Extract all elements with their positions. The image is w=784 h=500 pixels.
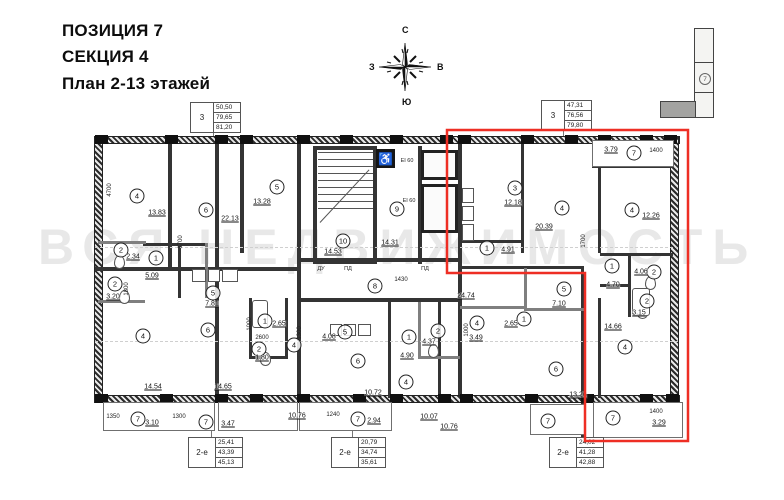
room-number-badge: 4 [470,316,485,331]
wall-segment [168,143,172,270]
kitchen-fixture [192,269,206,282]
room-number-badge: 1 [402,330,417,345]
room-number-badge: 6 [549,362,564,377]
room-area-label: 3.49 [469,335,483,342]
area-value: 20,79 [359,438,385,448]
wall-pier [165,135,178,144]
area-value: 76,56 [565,111,591,121]
room-number-badge: 4 [555,201,570,216]
room-number-badge: 1 [480,241,495,256]
wall-pier [297,135,310,144]
wall-pier [525,394,538,403]
dimension-label: 1430 [394,277,407,283]
apartment-type-label: 2-е [332,438,359,467]
stair-tread [318,187,373,188]
room-number-badge: 7 [199,415,214,430]
dimension-label: 1240 [326,412,339,418]
area-value: 79,80 [565,121,591,130]
wall-segment [524,308,584,311]
room-area-label: 20.39 [535,224,553,231]
room-area-label: 14.54 [144,384,162,391]
room-area-label: 22.13 [221,216,239,223]
wall-segment [313,146,377,150]
room-number-badge: 2 [647,265,662,280]
technical-note-label: ПД [421,266,429,272]
room-number-badge: 6 [199,203,214,218]
wall-segment [418,302,421,358]
room-number-badge: 7 [541,414,556,429]
dimension-label: 1300 [297,326,303,339]
room-area-label: 4.37 [422,339,436,346]
dimension-label: 1000 [464,323,470,336]
room-area-label: 7.81 [205,301,219,308]
wall-segment [313,260,377,264]
area-value: 42,88 [577,458,603,467]
area-value: 50,50 [214,103,240,113]
wall-segment [297,298,461,302]
room-area-label: 13.26 [569,392,587,399]
room-number-badge: 4 [136,329,151,344]
room-number-badge: 7 [627,146,642,161]
dimension-label: 1700 [178,235,184,248]
room-area-label: 12.18 [504,200,522,207]
area-value: 41,28 [577,448,603,458]
apartment-table-top-right: 3 47,31 76,56 79,80 [541,100,592,131]
area-value: 45,13 [216,458,242,467]
wall-pier [390,135,403,144]
area-value: 34,74 [359,448,385,458]
room-number-badge: 8 [368,279,383,294]
room-number-badge: 7 [606,411,621,426]
technical-note-label: EI 60 [403,198,416,204]
wall-pier [215,135,228,144]
room-area-label: 14.66 [604,324,622,331]
room-area-label: 3.15 [632,310,646,317]
room-area-label: 4.06 [634,269,648,276]
wall-segment [388,298,391,398]
room-number-badge: 4 [399,375,414,390]
room-area-label: 10.72 [364,390,382,397]
area-value: 24,02 [577,438,603,448]
room-area-label: 13.28 [253,199,271,206]
room-number-badge: 1 [605,259,620,274]
area-value: 25,41 [216,438,242,448]
room-number-badge: 10 [336,234,351,249]
room-area-label: 4.70 [606,282,620,289]
balcony-outline [530,404,585,435]
toilet-icon [428,344,439,358]
room-area-label: 4.90 [400,353,414,360]
wall-segment [178,243,181,298]
room-area-label: 2.65 [272,321,286,328]
room-number-badge: 6 [201,323,216,338]
room-area-label: 4.91 [501,247,515,254]
room-number-badge: 2 [431,324,446,339]
room-area-label: 14.65 [214,384,232,391]
balcony-outline [299,402,392,431]
room-area-label: 3.29 [652,420,666,427]
wall-pier [458,135,471,144]
room-number-badge: 4 [287,338,302,353]
area-value: 43,39 [216,448,242,458]
room-number-badge: 1 [149,251,164,266]
wall-pier [460,394,473,403]
room-area-label: 14.53 [324,249,342,256]
room-area-label: 2.94 [367,418,381,425]
elevator-shaft [421,184,458,233]
room-number-badge: 4 [618,340,633,355]
stair-diagonal [320,170,370,223]
stair-tread [318,208,373,209]
room-number-badge: 1 [258,314,273,329]
stair-tread [318,152,373,153]
room-number-badge: 1 [517,312,532,327]
room-number-badge: 5 [206,286,221,301]
room-area-label: 10.07 [420,414,438,421]
wall-pier [240,135,253,144]
stair-tread [318,180,373,181]
room-area-label: 1.80 [255,355,269,362]
technical-note-label: EI 60 [401,158,414,164]
elevator-shaft [421,150,458,180]
room-area-label: 14.31 [381,240,399,247]
stair-tread [318,166,373,167]
floor-plan-page: { "header": { "line1": "ПОЗИЦИЯ 7", "lin… [0,0,784,500]
room-number-badge: 4 [130,189,145,204]
room-area-label: 12.26 [642,213,660,220]
apartment-table-bottom-center: 2-е 20,79 34,74 35,61 [331,437,386,468]
stair-tread [318,159,373,160]
room-area-label: 3.47 [221,421,235,428]
area-value: 35,61 [359,458,385,467]
kitchen-fixture [222,269,238,282]
kitchen-fixture [462,224,474,241]
wall-pier [95,135,108,144]
room-area-label: 4.08 [322,334,336,341]
room-number-badge: 5 [557,282,572,297]
room-area-label: 5.09 [145,273,159,280]
room-area-label: 10.76 [288,413,306,420]
wall-pier [565,135,578,144]
room-number-badge: 2 [640,294,655,309]
room-area-label: 3.79 [604,147,618,154]
dimension-label: 1400 [649,148,662,154]
wall-segment [598,298,601,398]
room-area-label: 10.76 [440,424,458,431]
wall-segment [460,306,524,309]
technical-note-label: ПД [344,266,352,272]
wall-segment [671,137,678,433]
room-number-badge: 4 [625,203,640,218]
room-number-badge: 5 [338,325,353,340]
wall-pier [521,135,534,144]
room-area-label: 2.65 [504,321,518,328]
room-number-badge: 2 [108,277,123,292]
wheelchair-accessible-icon: ♿ [376,149,395,168]
balcony-outline [103,402,215,431]
wall-segment [240,143,244,253]
room-area-label: 7.10 [552,301,566,308]
dimension-label: 4700 [107,183,113,196]
dimension-label: 1400 [649,409,662,415]
room-area-label: 13.83 [148,210,166,217]
room-number-badge: 7 [351,412,366,427]
wall-segment [524,268,527,310]
room-number-badge: 3 [508,181,523,196]
wall-segment [521,143,524,253]
kitchen-fixture [208,269,220,282]
apartment-type-label: 3 [542,101,565,130]
dimension-label: 1300 [172,414,185,420]
room-area-label: 24.74 [457,293,475,300]
wall-pier [340,135,353,144]
wall-pier [438,394,451,403]
apartment-type-label: 3 [191,103,214,132]
stair-tread [318,201,373,202]
wall-segment [600,253,673,256]
apartment-table-top-left: 3 50,50 79,65 81,20 [190,102,241,133]
technical-note-label: ДУ [317,266,324,272]
wall-segment [418,356,460,359]
room-number-badge: 7 [131,412,146,427]
area-value: 81,20 [214,123,240,132]
dimension-label: 1350 [106,414,119,420]
kitchen-fixture [462,206,474,221]
apartment-type-label: 2-е [550,438,577,467]
kitchen-fixture [462,188,474,203]
room-area-label: 2.34 [126,254,140,261]
wall-pier [440,135,453,144]
apartment-table-bottom-left: 2-е 25,41 43,39 45,13 [188,437,243,468]
dimension-label: 1700 [581,234,587,247]
apartment-table-bottom-right: 2-е 24,02 41,28 42,88 [549,437,604,468]
area-value: 79,65 [214,113,240,123]
dimension-label: 1800 [124,282,130,295]
floor-plan-drawing: 413.83622.13513.2822.3415.0923.2057.8141… [0,0,784,500]
dimension-label: 2600 [255,335,268,341]
axis-line [95,341,678,342]
dimension-label: 1000 [247,317,253,330]
room-area-label: 3.10 [145,420,159,427]
room-number-badge: 6 [351,354,366,369]
apartment-type-label: 2-е [189,438,216,467]
wall-segment [143,243,205,246]
kitchen-fixture [358,324,371,336]
wall-segment [458,266,584,269]
room-number-badge: 5 [270,180,285,195]
room-area-label: 3.20 [106,294,120,301]
area-value: 47,31 [565,101,591,111]
